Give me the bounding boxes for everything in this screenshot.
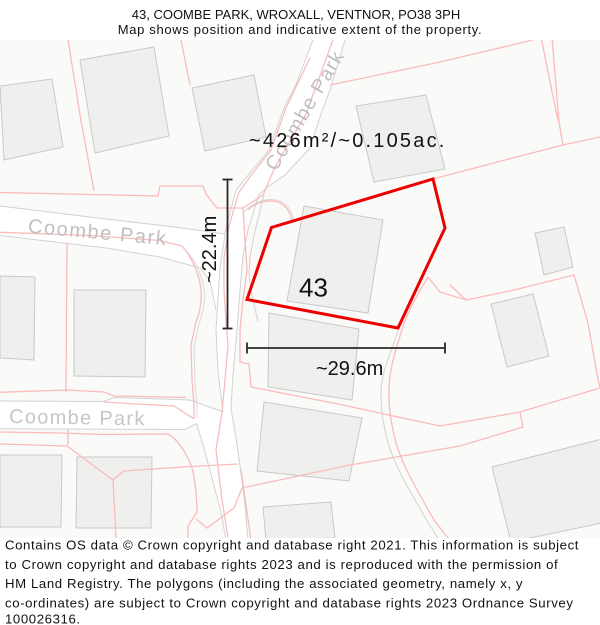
svg-text:Contains OS data © Crown copyr: Contains OS data © Crown copyright and d…	[5, 538, 579, 553]
svg-text:~29.6m: ~29.6m	[316, 358, 383, 380]
svg-text:HM Land Registry. The polygons: HM Land Registry. The polygons (includin…	[5, 576, 523, 591]
svg-text:~22.4m: ~22.4m	[199, 216, 221, 283]
svg-text:43, COOMBE PARK, WROXALL, VENT: 43, COOMBE PARK, WROXALL, VENTNOR, PO38 …	[132, 7, 460, 22]
svg-text:Coombe Park: Coombe Park	[9, 406, 146, 430]
svg-text:Map shows position and indicat: Map shows position and indicative extent…	[118, 22, 483, 37]
svg-text:to Crown copyright and databas: to Crown copyright and database rights 2…	[5, 557, 558, 572]
svg-text:43: 43	[299, 273, 328, 303]
svg-text:100026316.: 100026316.	[5, 612, 81, 625]
svg-text:~426m²/~0.105ac.: ~426m²/~0.105ac.	[249, 130, 447, 152]
svg-text:co-ordinates) are subject to C: co-ordinates) are subject to Crown copyr…	[5, 595, 574, 610]
